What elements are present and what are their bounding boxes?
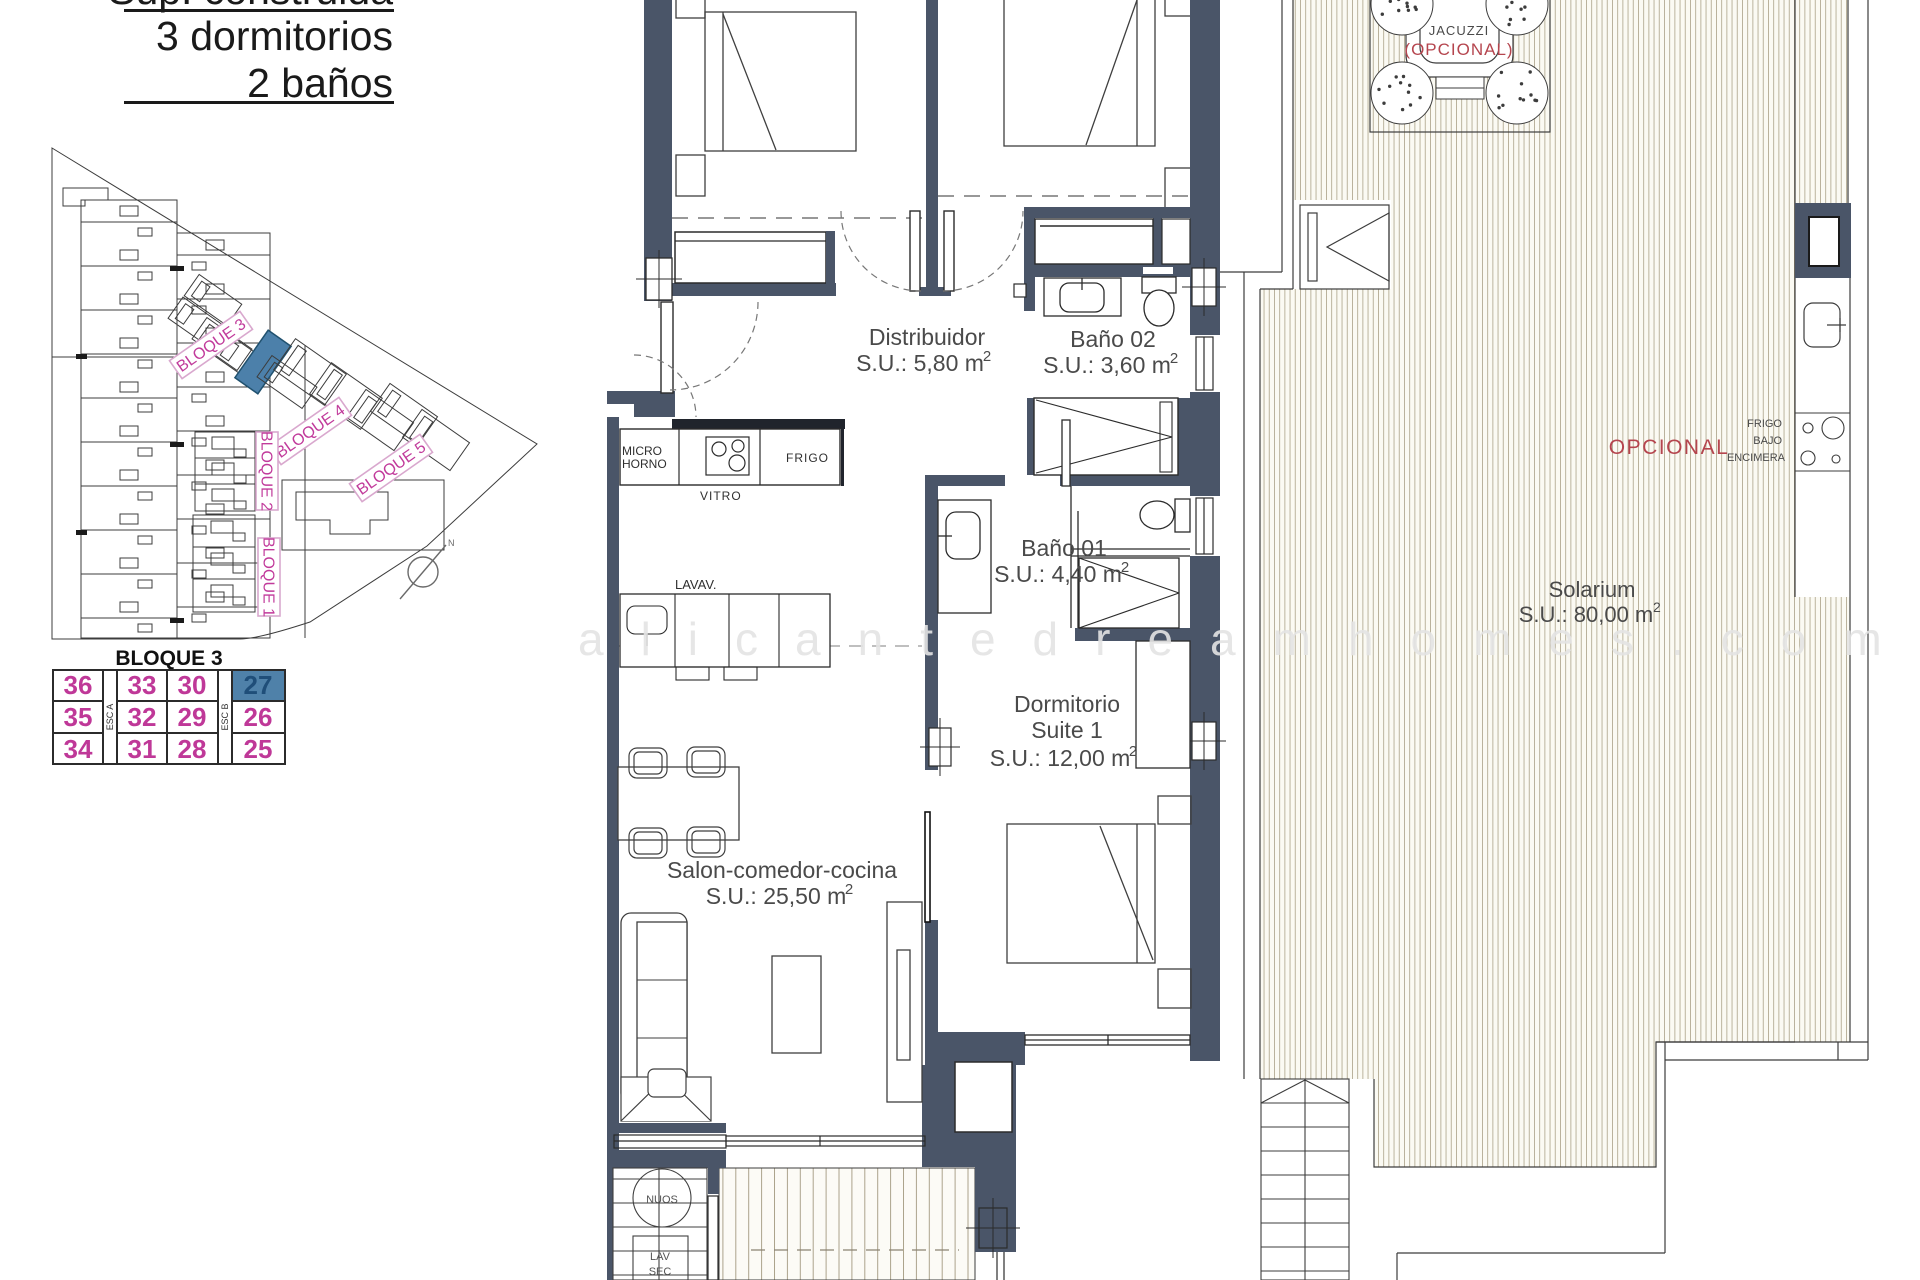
svg-text:Distribuidor: Distribuidor	[869, 324, 986, 350]
svg-text:2: 2	[1129, 743, 1137, 760]
svg-text:32: 32	[128, 702, 157, 732]
svg-text:N: N	[448, 538, 455, 548]
svg-text:MICRO: MICRO	[622, 444, 662, 458]
svg-text:S.U.: 4,40 m: S.U.: 4,40 m	[994, 561, 1122, 587]
svg-text:S.U.: 25,50 m: S.U.: 25,50 m	[706, 883, 847, 909]
svg-text:BAJO: BAJO	[1753, 435, 1782, 447]
svg-text:SEC: SEC	[649, 1266, 672, 1278]
svg-text:BLOQUE 3: BLOQUE 3	[115, 647, 222, 670]
svg-text:30: 30	[178, 670, 207, 700]
svg-text:HORNO: HORNO	[622, 457, 667, 471]
svg-text:LAVAV.: LAVAV.	[675, 577, 716, 592]
svg-text:Solarium: Solarium	[1549, 577, 1636, 602]
svg-text:FRIGO: FRIGO	[786, 451, 829, 465]
svg-text:BLOQUE 1: BLOQUE 1	[260, 537, 277, 617]
svg-text:34: 34	[64, 734, 93, 764]
svg-text:Suite 1: Suite 1	[1031, 717, 1103, 743]
svg-text:ESC B: ESC B	[220, 703, 230, 730]
svg-text:(OPCIONAL): (OPCIONAL)	[1404, 40, 1513, 59]
svg-text:Baño 02: Baño 02	[1070, 326, 1156, 352]
svg-text:LAV: LAV	[650, 1251, 671, 1263]
svg-text:JACUZZI: JACUZZI	[1429, 23, 1489, 38]
svg-text:Dormitorio: Dormitorio	[1014, 691, 1120, 717]
svg-text:Salon-comedor-cocina: Salon-comedor-cocina	[667, 857, 897, 883]
svg-text:BLOQUE 2: BLOQUE 2	[258, 431, 275, 511]
svg-text:2: 2	[1121, 559, 1129, 576]
svg-text:25: 25	[244, 734, 273, 764]
svg-text:36: 36	[64, 670, 93, 700]
svg-text:27: 27	[244, 670, 273, 700]
svg-text:VITRO: VITRO	[700, 489, 742, 503]
svg-text:31: 31	[128, 734, 157, 764]
svg-text:35: 35	[64, 702, 93, 732]
svg-text:3 dormitorios: 3 dormitorios	[156, 13, 393, 59]
svg-text:28: 28	[178, 734, 207, 764]
svg-text:S.U.: 3,60 m: S.U.: 3,60 m	[1043, 352, 1171, 378]
svg-text:29: 29	[178, 702, 207, 732]
svg-text:NUOS: NUOS	[646, 1194, 678, 1206]
svg-text:2: 2	[1170, 350, 1178, 367]
svg-text:alicantedreamhomes.com: alicantedreamhomes.com	[578, 613, 1919, 665]
svg-text:33: 33	[128, 670, 157, 700]
svg-text:2: 2	[845, 881, 853, 898]
svg-text:26: 26	[244, 702, 273, 732]
svg-text:S.U.: 12,00 m: S.U.: 12,00 m	[990, 745, 1131, 771]
svg-text:2 baños: 2 baños	[247, 60, 393, 106]
svg-text:FRIGO: FRIGO	[1747, 418, 1782, 430]
svg-text:ENCIMERA: ENCIMERA	[1727, 452, 1786, 464]
svg-text:Baño 01: Baño 01	[1021, 535, 1107, 561]
svg-text:S.U.: 5,80 m: S.U.: 5,80 m	[856, 350, 984, 376]
svg-text:2: 2	[983, 348, 991, 365]
svg-text:OPCIONAL: OPCIONAL	[1609, 436, 1730, 459]
svg-text:ESC A: ESC A	[105, 704, 115, 731]
